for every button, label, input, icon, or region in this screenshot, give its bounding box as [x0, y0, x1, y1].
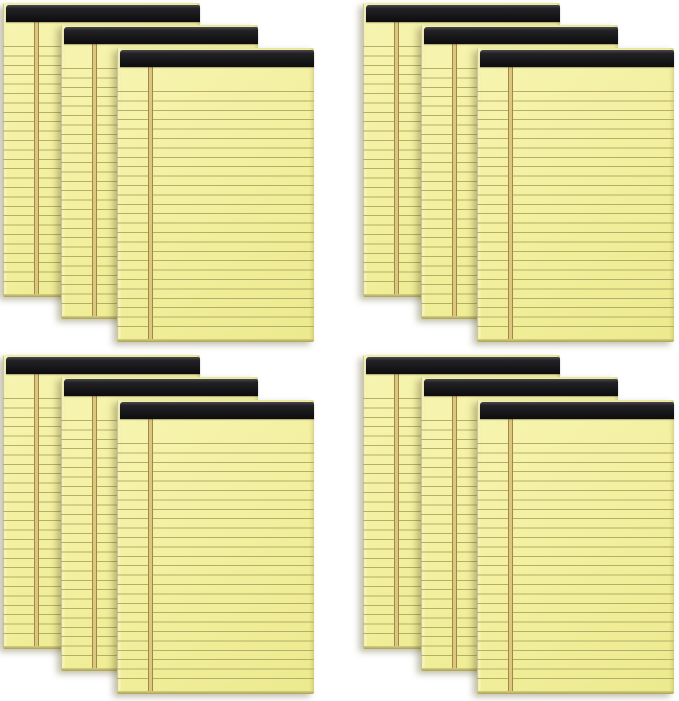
pad-margin-line [394, 374, 399, 646]
pad-ruled-lines [477, 443, 674, 687]
pad-sheet-edge-bottom [117, 691, 314, 694]
legal-pad [117, 400, 314, 694]
pad-margin-line [34, 374, 39, 646]
pad-margin-line [92, 44, 97, 316]
pad-margin-line [148, 67, 153, 339]
pad-binding-strip [6, 357, 200, 374]
pad-ruled-lines [477, 91, 674, 335]
pad-margin-line [508, 419, 513, 691]
pad-binding-strip [6, 5, 200, 22]
pad-stack-top-left [3, 3, 314, 342]
pad-sheet-edge-bottom [477, 691, 674, 694]
pad-binding-strip [366, 357, 560, 374]
pad-margin-line [394, 22, 399, 294]
pad-binding-strip [424, 379, 618, 396]
pad-ruled-lines [117, 443, 314, 687]
pad-binding-strip [64, 27, 258, 44]
pad-binding-strip [424, 27, 618, 44]
pad-sheet-edge-bottom [477, 339, 674, 342]
pad-margin-line [508, 67, 513, 339]
legal-pad [477, 48, 674, 342]
pad-binding-strip [120, 50, 314, 67]
pad-binding-strip [480, 50, 674, 67]
pad-stack-top-right [363, 3, 674, 342]
legal-pad [477, 400, 674, 694]
pad-margin-line [148, 419, 153, 691]
pad-binding-strip [366, 5, 560, 22]
pad-margin-line [34, 22, 39, 294]
product-photo-legal-pads [0, 0, 679, 701]
legal-pad [117, 48, 314, 342]
pad-sheet-edge-bottom [117, 339, 314, 342]
pad-stack-bottom-left [3, 355, 314, 694]
pad-margin-line [92, 396, 97, 668]
pad-binding-strip [120, 402, 314, 419]
pad-binding-strip [480, 402, 674, 419]
pad-binding-strip [64, 379, 258, 396]
pad-ruled-lines [117, 91, 314, 335]
pad-stack-bottom-right [363, 355, 674, 694]
pad-margin-line [452, 396, 457, 668]
pad-margin-line [452, 44, 457, 316]
